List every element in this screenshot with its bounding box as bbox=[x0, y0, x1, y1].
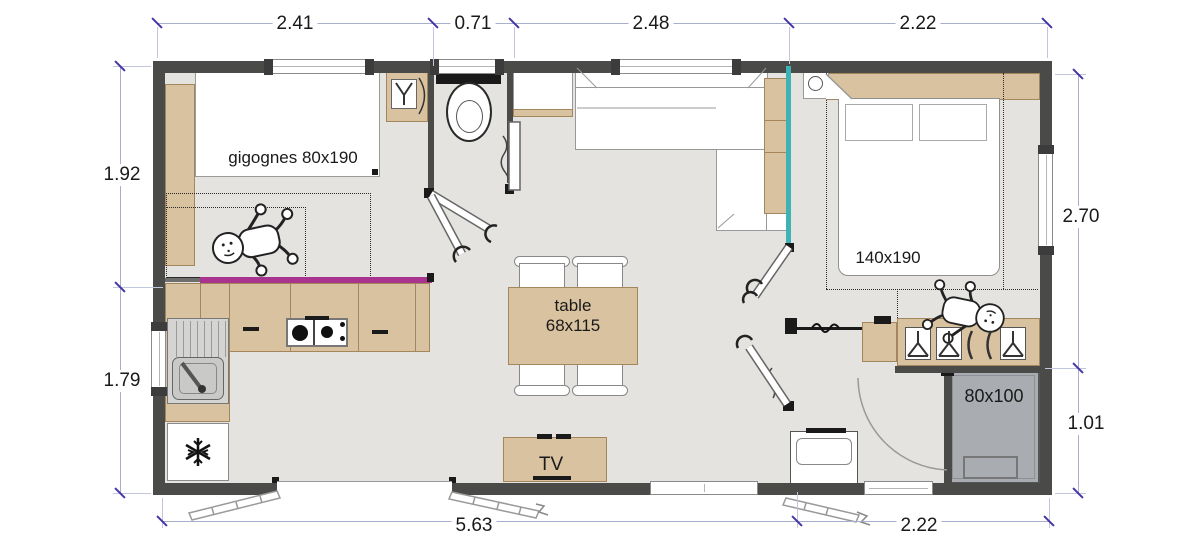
pillow bbox=[919, 104, 987, 141]
sink-drainer bbox=[170, 321, 226, 357]
dim-bottom-1: 5.63 bbox=[452, 515, 497, 537]
door-pivot bbox=[785, 243, 794, 252]
fridge bbox=[167, 423, 229, 481]
overhead-line bbox=[897, 289, 898, 318]
window-bathroom bbox=[864, 481, 933, 495]
cabinet-handle bbox=[372, 330, 388, 334]
headboard-wardrobe bbox=[826, 73, 1040, 100]
bedroom-sliding-door bbox=[786, 66, 791, 244]
window-wc bbox=[432, 59, 502, 74]
dim-top-3: 2.48 bbox=[629, 13, 674, 35]
double-bed-label: 140x190 bbox=[855, 248, 920, 268]
chair bbox=[577, 263, 623, 289]
overhead-line bbox=[826, 289, 1038, 290]
dim-bottom-2: 2.22 bbox=[897, 515, 942, 537]
bathroom-wall bbox=[895, 366, 1040, 373]
sink-basin-inner bbox=[179, 363, 217, 394]
shower-step bbox=[963, 456, 1018, 479]
pillow bbox=[845, 104, 913, 141]
door-pivot bbox=[783, 401, 794, 411]
ext-line bbox=[433, 27, 434, 66]
kids-bed-label: gigognes 80x190 bbox=[228, 148, 358, 168]
dim-top-4: 2.22 bbox=[896, 13, 941, 35]
ext-line bbox=[789, 27, 790, 64]
ext-line bbox=[1047, 27, 1048, 58]
wall-right bbox=[1040, 61, 1052, 495]
hob-grate-bar bbox=[305, 316, 329, 320]
wc-wall-left bbox=[428, 73, 434, 191]
counter-back-line bbox=[165, 278, 200, 282]
hanger-icon bbox=[905, 327, 931, 360]
bar-counter-edge bbox=[200, 277, 432, 283]
bar-end-mark bbox=[427, 273, 434, 282]
door-pivot bbox=[505, 184, 514, 194]
kids-rug-outline bbox=[166, 207, 306, 278]
wc-wall-right bbox=[507, 73, 513, 183]
dim-top-2: 0.71 bbox=[451, 13, 496, 35]
tv-icon bbox=[533, 476, 571, 480]
bed-corner-mark bbox=[372, 169, 378, 175]
hanger-icon bbox=[936, 327, 962, 360]
window-living bbox=[613, 59, 739, 74]
dim-left-2: 1.79 bbox=[100, 370, 145, 392]
bay-opening bbox=[277, 481, 452, 497]
ext-line bbox=[1055, 493, 1086, 494]
dim-line-left bbox=[120, 66, 121, 494]
door-pivot bbox=[424, 188, 434, 198]
washbasin-bowl bbox=[808, 76, 823, 91]
overhead-line bbox=[1003, 73, 1004, 289]
table-label: table68x115 bbox=[546, 296, 601, 336]
ext-line bbox=[157, 27, 158, 58]
hob-burner-small bbox=[321, 326, 333, 338]
dim-right-2: 1.01 bbox=[1064, 413, 1109, 435]
shower-label: 80x100 bbox=[964, 386, 1023, 406]
tv-label: TV bbox=[539, 455, 563, 475]
shelf-item bbox=[874, 316, 891, 324]
dressing-shelf bbox=[862, 322, 897, 362]
tv-cabinet-mark bbox=[556, 434, 571, 439]
window-kitchen-left bbox=[151, 325, 166, 393]
washbasin-back-bar bbox=[806, 428, 846, 433]
hanger-icon bbox=[1000, 327, 1026, 360]
wall-left bbox=[153, 61, 165, 495]
dim-right-1: 2.70 bbox=[1059, 206, 1104, 228]
chair bbox=[572, 385, 628, 396]
cabinet-handle bbox=[243, 327, 259, 331]
ext-line bbox=[514, 27, 515, 58]
window-kids bbox=[266, 59, 372, 74]
washbasin-top bbox=[796, 438, 852, 465]
chair bbox=[519, 263, 565, 289]
hob-divider bbox=[313, 320, 315, 345]
overhead-line bbox=[826, 73, 827, 289]
tv-cabinet-mark bbox=[537, 434, 552, 439]
sofa-seat bbox=[575, 87, 768, 150]
vanity-basin bbox=[391, 79, 417, 109]
ext-line bbox=[1055, 74, 1086, 75]
hob-burner-large bbox=[292, 325, 308, 341]
hob-knob bbox=[340, 322, 345, 327]
window-bedroom-right bbox=[1038, 148, 1053, 252]
toilet-bowl-inner bbox=[456, 100, 483, 133]
floor-plan: gigognes 80x190 table68x115 TV bbox=[0, 0, 1200, 544]
hob-knob bbox=[340, 336, 345, 341]
cabinet-divider bbox=[415, 284, 416, 351]
dim-top-1: 2.41 bbox=[273, 13, 318, 35]
rail-bracket bbox=[785, 318, 797, 334]
chair bbox=[514, 385, 570, 396]
dim-left-1: 1.92 bbox=[100, 164, 145, 186]
cabinet-divider bbox=[358, 284, 359, 351]
side-cabinet-edge bbox=[513, 109, 573, 117]
clothes-rail bbox=[790, 327, 864, 330]
shower-door-leaf bbox=[944, 371, 952, 483]
entry-door bbox=[650, 481, 758, 495]
